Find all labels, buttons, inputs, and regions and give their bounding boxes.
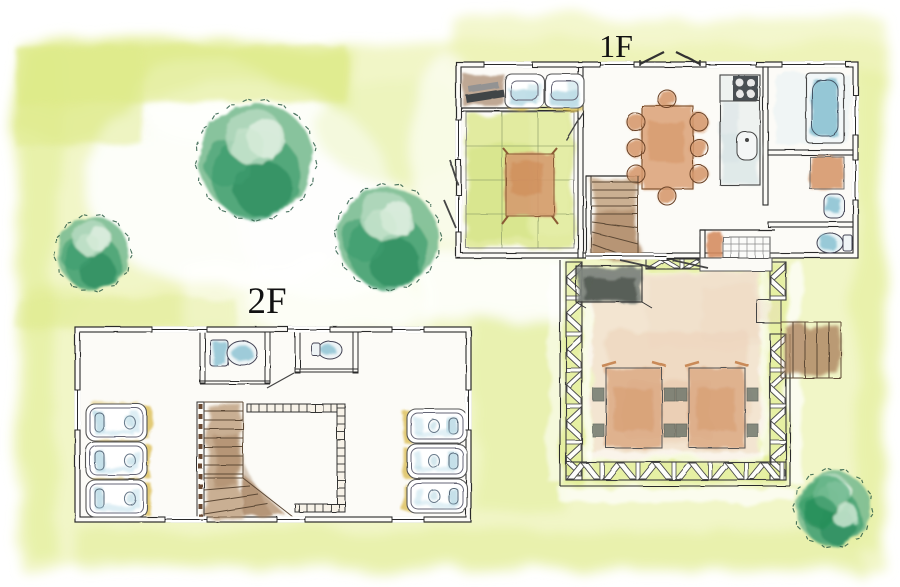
svg-text:2F: 2F bbox=[247, 281, 286, 322]
svg-text:1F: 1F bbox=[599, 28, 633, 64]
